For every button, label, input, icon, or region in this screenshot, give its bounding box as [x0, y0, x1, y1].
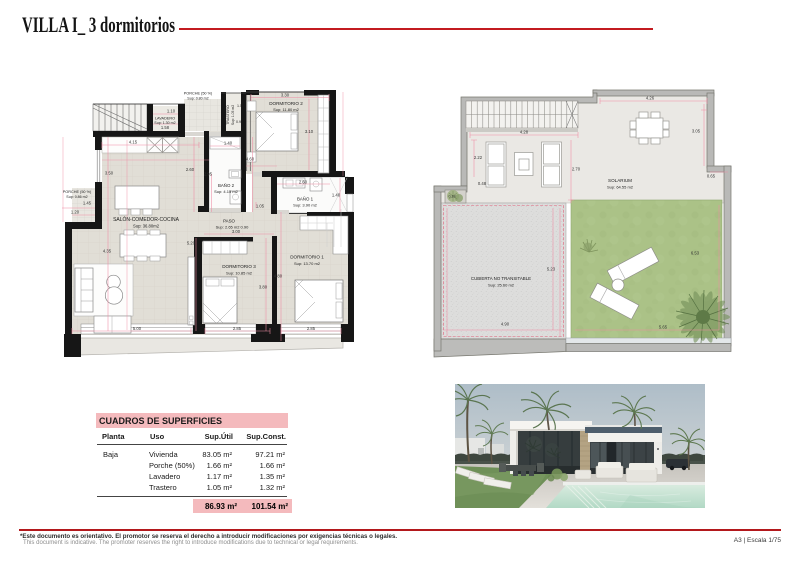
- svg-text:DORMITORIO 2: DORMITORIO 2: [269, 101, 303, 106]
- svg-text:2.85: 2.85: [307, 326, 316, 331]
- svg-text:SOLARIUM: SOLARIUM: [608, 178, 632, 183]
- svg-text:5.23: 5.23: [547, 267, 556, 272]
- svg-text:Sup: 36.80m2: Sup: 36.80m2: [133, 224, 160, 229]
- svg-text:3.05: 3.05: [692, 129, 701, 134]
- svg-text:3.00: 3.00: [232, 229, 241, 234]
- svg-text:PORCHE (50 %): PORCHE (50 %): [63, 190, 92, 194]
- svg-text:1.58: 1.58: [161, 125, 170, 130]
- svg-text:2.22: 2.22: [474, 155, 483, 160]
- svg-text:4.90: 4.90: [501, 321, 510, 326]
- svg-text:1.05: 1.05: [256, 203, 265, 208]
- svg-text:4.80: 4.80: [274, 274, 283, 279]
- svg-text:Sup: 4.15 m2: Sup: 4.15 m2: [214, 189, 239, 194]
- svg-text:Sup: 2.65 m2 0.90: Sup: 2.65 m2 0.90: [216, 225, 249, 230]
- svg-text:3.30: 3.30: [281, 92, 290, 97]
- svg-text:4.26: 4.26: [646, 96, 655, 101]
- svg-text:1.40: 1.40: [224, 141, 233, 146]
- svg-text:4.28: 4.28: [520, 129, 529, 134]
- svg-text:DORMITORIO 1: DORMITORIO 1: [290, 255, 324, 260]
- svg-text:BAÑO 1: BAÑO 1: [297, 197, 314, 202]
- svg-text:1.50: 1.50: [237, 104, 244, 108]
- svg-text:0.48: 0.48: [478, 181, 487, 186]
- svg-text:PASO: PASO: [223, 219, 235, 224]
- svg-text:Sup: 10.85 m2: Sup: 10.85 m2: [226, 271, 253, 276]
- svg-text:1.45: 1.45: [83, 201, 92, 206]
- svg-text:SALÓN-COMEDOR-COCINA: SALÓN-COMEDOR-COCINA: [113, 216, 180, 223]
- svg-text:BAÑO 2: BAÑO 2: [218, 183, 235, 188]
- svg-text:4.15: 4.15: [129, 139, 138, 144]
- svg-text:1.20: 1.20: [71, 209, 80, 214]
- svg-text:LAVADERO: LAVADERO: [155, 117, 175, 121]
- svg-text:5.00: 5.00: [133, 326, 142, 331]
- svg-text:Sup: 0.86 m2: Sup: 0.86 m2: [66, 195, 87, 199]
- svg-text:0.18: 0.18: [449, 195, 456, 199]
- svg-text:PORCHE (50 %): PORCHE (50 %): [184, 92, 213, 96]
- svg-text:DORMITORIO 3: DORMITORIO 3: [222, 264, 256, 269]
- svg-text:Sup: 11.80 m2: Sup: 11.80 m2: [273, 107, 299, 112]
- svg-text:TRASTERO: TRASTERO: [226, 105, 230, 125]
- svg-text:CUBIERTA NO TRANSITABLE: CUBIERTA NO TRANSITABLE: [471, 276, 531, 281]
- svg-text:Sup: 0.80 m2: Sup: 0.80 m2: [187, 97, 208, 101]
- svg-text:5.65: 5.65: [659, 324, 668, 329]
- svg-text:2.85: 2.85: [233, 326, 242, 331]
- svg-text:2.60: 2.60: [299, 179, 308, 184]
- svg-text:Sup: 1.05 m2: Sup: 1.05 m2: [231, 105, 235, 125]
- svg-text:2.70: 2.70: [572, 167, 581, 172]
- svg-text:Sup: 1.30 m2: Sup: 1.30 m2: [154, 121, 175, 125]
- svg-text:4.35: 4.35: [103, 249, 112, 254]
- svg-text:Sup: 13.70 m2: Sup: 13.70 m2: [294, 261, 321, 266]
- svg-text:1.40: 1.40: [332, 193, 341, 198]
- svg-text:Sup: 64.55 m2: Sup: 64.55 m2: [607, 185, 634, 190]
- svg-text:Sup: 25.60 m2: Sup: 25.60 m2: [488, 283, 515, 288]
- svg-text:4.60: 4.60: [246, 157, 255, 162]
- svg-text:0.90: 0.90: [236, 120, 243, 124]
- svg-text:3.10: 3.10: [305, 129, 314, 134]
- svg-text:3.80: 3.80: [259, 285, 268, 290]
- svg-text:2.60: 2.60: [186, 167, 195, 172]
- svg-text:0.65: 0.65: [707, 174, 716, 179]
- svg-text:Sup: 3.90 m2: Sup: 3.90 m2: [293, 203, 318, 208]
- svg-text:2.95: 2.95: [204, 172, 213, 177]
- svg-text:6.53: 6.53: [691, 251, 700, 256]
- svg-text:5.20: 5.20: [187, 241, 196, 246]
- svg-text:1.10: 1.10: [167, 108, 176, 113]
- svg-text:3.50: 3.50: [105, 171, 114, 176]
